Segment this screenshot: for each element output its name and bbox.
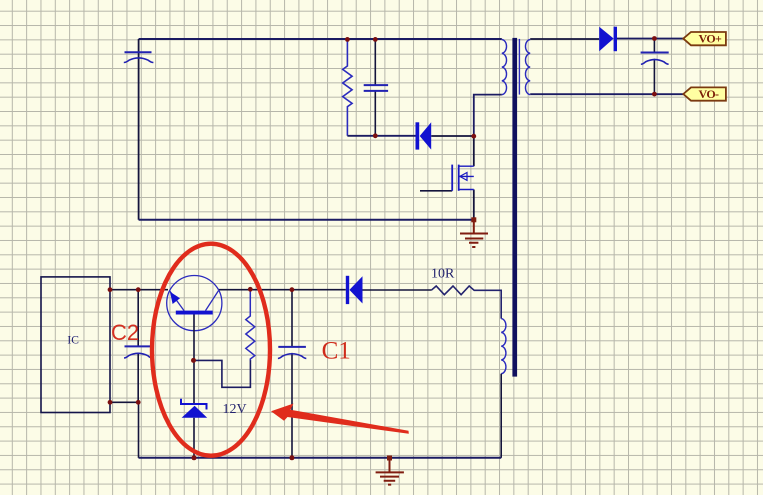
svg-text:VO-: VO- <box>699 87 720 101</box>
svg-text:12V: 12V <box>223 402 247 417</box>
svg-text:VO+: VO+ <box>699 32 723 46</box>
svg-text:C1: C1 <box>322 338 351 365</box>
svg-text:IC: IC <box>67 334 79 346</box>
svg-text:C2: C2 <box>111 320 139 345</box>
svg-text:10R: 10R <box>431 266 455 281</box>
